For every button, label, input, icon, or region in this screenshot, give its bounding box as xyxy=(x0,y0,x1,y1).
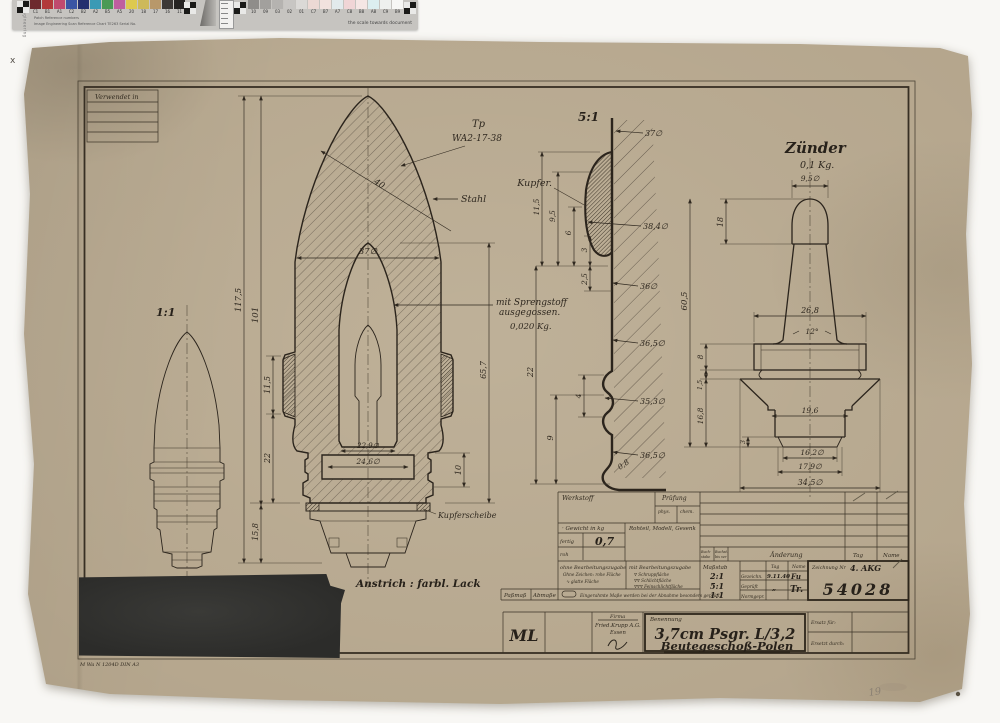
calibration-maker-line: Image Engineering Scan Reference Chart T… xyxy=(34,22,136,26)
phys-label: phys. xyxy=(658,509,671,515)
sprengstoff-line2: ausgegossen. xyxy=(499,308,560,318)
kupfer-label: Kupfer. xyxy=(516,178,552,189)
eingerahmt-note: Eingerahmte Maße werden bei der Abnahme … xyxy=(579,594,721,599)
zeichnung-nr-label: Zeichnung Nr xyxy=(811,565,847,571)
gezeichnet-date: 9.11.40 xyxy=(767,574,790,580)
fuze-dim-34-5: 34,5∅ xyxy=(798,478,824,487)
resolution-chart xyxy=(219,0,234,29)
ml-mark: ML xyxy=(509,626,539,645)
detail-dim-3: 3 xyxy=(580,247,589,252)
fuze-dim-1-5: 1,5 xyxy=(696,380,704,390)
gewicht-fertig-value: 0,7 xyxy=(595,535,614,548)
calibration-patch: 10 xyxy=(248,0,259,15)
mit-line1: mit Bearbeitungszugabe xyxy=(629,565,691,571)
dim-65-7: 65,7 xyxy=(479,360,488,379)
fuze-dim-16-8: 16,8 xyxy=(696,407,705,424)
zeichnung-number: 54028 xyxy=(823,580,894,599)
checker-patch xyxy=(184,2,196,14)
massstab-2to1: 2:1 xyxy=(709,571,724,581)
scale-5to1-label: 5:1 xyxy=(578,110,599,124)
werkstoff-label: Werkstoff xyxy=(562,494,595,502)
ohne-line2: Ohne Zeichen: rohe Fläche xyxy=(563,572,621,577)
pencil-smudge xyxy=(879,683,907,691)
detail-dim-22: 22 xyxy=(526,367,535,378)
tag-label: Tag xyxy=(853,553,864,559)
abmasse-label: Abmaße xyxy=(532,593,557,599)
detail-dim-37: 37∅ xyxy=(645,129,663,138)
fertig-label: fertig xyxy=(559,539,574,545)
geprueft-date-ditto: „ xyxy=(772,583,776,592)
fuze-dim-9-5: 9,5∅ xyxy=(801,174,820,183)
fuze-dim-16-2: 16,2∅ xyxy=(800,448,824,457)
tp-label: Tp xyxy=(472,119,486,130)
ersetzt-label: Ersetzt durch: xyxy=(810,641,845,647)
detail-dim-9: 9 xyxy=(546,435,555,440)
passmass-label: Paßmaß xyxy=(503,593,527,599)
dim-117-5: 117,5 xyxy=(234,288,244,312)
calibration-patch: C8 xyxy=(344,0,355,15)
calibration-patch: B8 xyxy=(356,0,367,15)
calibration-patch: A8 xyxy=(368,0,379,15)
buchst-label-2: bis ver xyxy=(715,555,727,559)
fuze-dim-18: 18 xyxy=(716,217,725,227)
calibration-patch: C7 xyxy=(308,0,319,15)
calibration-patch: 17 xyxy=(150,0,161,15)
calibration-patch: B2 xyxy=(78,0,89,15)
view-main-section xyxy=(283,88,453,588)
fuze-dim-8: 8 xyxy=(696,354,705,359)
dim-15-8: 15,8 xyxy=(251,523,260,541)
registration-mark: x xyxy=(10,56,16,66)
sig-tag-header: Tag xyxy=(771,564,779,570)
calibration-patch: A5 xyxy=(114,0,125,15)
sig-name-header: Name xyxy=(791,564,806,570)
aenderung-label: Änderung xyxy=(769,550,803,559)
gezeichnet-label: Gezeichn. xyxy=(741,575,762,580)
punch-hole xyxy=(956,692,960,696)
calibration-patch: 02 xyxy=(284,0,295,15)
anstrich-note: Anstrich : farbl. Lack xyxy=(355,578,481,590)
fuze-dim-12deg: 12° xyxy=(805,327,819,336)
calibration-patch: A1 xyxy=(54,0,65,15)
mit-line3: ∇∇ Schlichtfläche xyxy=(634,578,672,583)
calibration-patch: B9 xyxy=(392,0,403,15)
firma-label: Firma xyxy=(609,614,625,620)
redaction-bar xyxy=(79,574,345,658)
sprengstoff-weight: 0,020 Kg. xyxy=(510,322,552,332)
ohne-line3: ∿ glatte Fläche xyxy=(566,579,599,584)
buchstabe-label-1: Buch- xyxy=(700,550,712,554)
gray-wedge xyxy=(200,0,216,26)
zeichnung-code: 4. AKG xyxy=(850,563,881,573)
ohne-line1: ohne Bearbeitungszugabe xyxy=(560,565,626,571)
detail-dim-36-5a: 36,5∅ xyxy=(640,339,666,348)
checker-patch xyxy=(17,1,29,13)
fuze-dim-60-5: 60,5 xyxy=(680,292,690,311)
detail-dim-35-3: 35,3∅ xyxy=(640,397,666,406)
zuender-weight: 0,1 Kg. xyxy=(800,160,834,171)
scale-1to1-label: 1:1 xyxy=(156,306,175,319)
checker-patch xyxy=(234,2,246,14)
pruefung-label: Prüfung xyxy=(661,495,687,502)
detail-dim-6: 6 xyxy=(564,230,573,235)
geprueft-label: Geprüft xyxy=(741,585,758,590)
scanned-drawing-photo: Verwendet in 1:1 xyxy=(0,0,1000,723)
detail-dim-36-5b: 36,5∅ xyxy=(640,451,666,460)
calibration-patch: B5 xyxy=(102,0,113,15)
fuze-dim-3: 3 xyxy=(739,440,747,444)
detail-dim-2-5: 2,5 xyxy=(580,273,589,286)
calibration-patch: B1 xyxy=(42,0,53,15)
calibration-patch: C1 xyxy=(30,0,41,15)
fuze-dim-17-9: 17,9∅ xyxy=(798,462,822,471)
ersatz-label: Ersatz für: xyxy=(810,620,836,626)
stahl-label: Stahl xyxy=(461,194,486,205)
gezeichnet-name: Fu xyxy=(790,572,801,581)
calibration-patch: 03 xyxy=(272,0,283,15)
sprengstoff-line1: mit Sprengstoff xyxy=(496,298,569,308)
kupferscheibe-label: Kupferscheibe xyxy=(437,511,497,520)
dim-11-5: 11,5 xyxy=(263,376,272,394)
calibration-patch: 20 xyxy=(126,0,137,15)
normgepr-label: Normgepr. xyxy=(740,595,765,600)
dim-101: 101 xyxy=(251,307,261,323)
view-fuze: Zünder 0,1 Kg. 9,5∅ 18 26,8 12° 60,5 8 1 xyxy=(680,139,880,500)
buchst-label-1: Buchst. xyxy=(714,550,728,554)
detail-dim-4: 4 xyxy=(574,393,583,399)
fuze-dim-26-8: 26,8 xyxy=(800,306,819,315)
calibration-patch: C2 xyxy=(66,0,77,15)
calibration-strip: Image Engineering C1B1A1C2B2A2B5A5201817… xyxy=(12,0,418,30)
fuze-dim-19-6: 19,6 xyxy=(802,406,819,415)
geprueft-name: Tr. xyxy=(790,585,803,595)
gewicht-label: · Gewicht in kg xyxy=(562,526,605,532)
detail-dim-11-5: 11,5 xyxy=(532,198,541,215)
din-form-note: M Wa N 1204D DIN A3 xyxy=(79,662,139,668)
detail-dim-9-5: 9,5 xyxy=(548,210,557,222)
calibration-patch: 18 xyxy=(138,0,149,15)
firma-city: Essen xyxy=(609,630,626,636)
name-label: Name xyxy=(882,553,900,559)
rohteil-label: Rohteil, Modell, Gesenk xyxy=(628,526,696,532)
tp-number: WA2-17-38 xyxy=(452,134,502,144)
roh-label: roh xyxy=(560,552,569,558)
calibration-patch: B7 xyxy=(320,0,331,15)
calibration-patch: 16 xyxy=(162,0,173,15)
calibration-patch: 01 xyxy=(296,0,307,15)
calibration-right-patches: 1009030201C7B7A7C8B8A8C9B9 xyxy=(248,0,403,15)
dim-37: 37∅ xyxy=(359,247,378,257)
calibration-patch: C9 xyxy=(380,0,391,15)
firma-name: Fried.Krupp A.G. xyxy=(594,623,641,629)
verwendet-table: Verwendet in xyxy=(87,90,158,142)
benennung-line2: Beutegeschoß-Polen xyxy=(660,639,793,653)
dim-24-6: 24,6∅ xyxy=(355,457,380,466)
chem-label: chem. xyxy=(680,509,694,515)
detail-dim-36: 36∅ xyxy=(640,282,658,291)
calibration-fineprint: Patch Reference numbers xyxy=(34,16,79,20)
detail-dim-38-4: 38,4∅ xyxy=(643,222,669,231)
dim-10: 10 xyxy=(454,465,463,475)
view-1to1: 1:1 xyxy=(150,305,224,585)
mit-line2: ∇ Schruppfläche xyxy=(634,572,670,577)
benennung-label: Benennung xyxy=(649,617,682,623)
dim-22-9: 22,9∅ xyxy=(356,442,380,450)
buchstabe-label-2: stabe xyxy=(701,555,710,559)
calibration-patch: A7 xyxy=(332,0,343,15)
dim-22: 22 xyxy=(263,453,272,464)
mit-line4: ∇∇∇ Feinschlichtfläche xyxy=(634,584,683,589)
checker-patch xyxy=(404,2,416,14)
calibration-note: the scale towards document xyxy=(312,21,412,26)
calibration-patch: A2 xyxy=(90,0,101,15)
title-block: Werkstoff Prüfung phys. chem. · Gewicht … xyxy=(501,491,909,653)
calibration-left-patches: C1B1A1C2B2A2B5A52018171611 xyxy=(30,0,185,15)
verwendet-label: Verwendet in xyxy=(95,93,139,101)
calibration-patch: 09 xyxy=(260,0,271,15)
zuender-title: Zünder xyxy=(784,139,847,157)
